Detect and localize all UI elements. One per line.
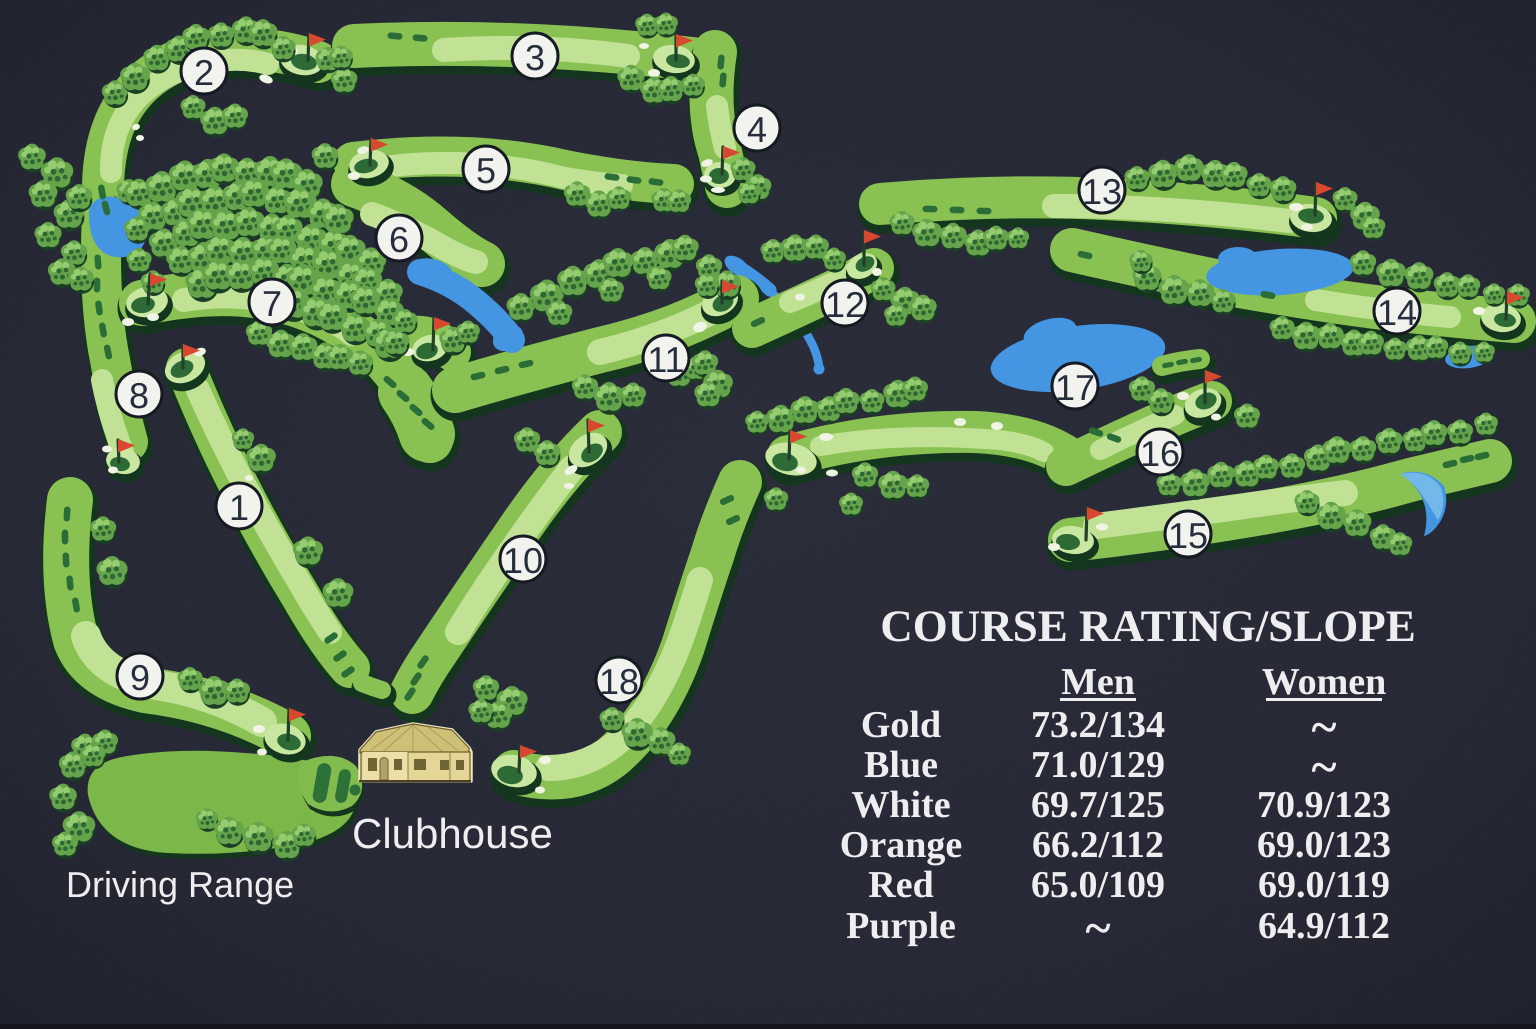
svg-text:10: 10 bbox=[503, 540, 543, 581]
svg-text:2: 2 bbox=[194, 52, 214, 93]
svg-text:Red: Red bbox=[868, 864, 933, 906]
svg-text:Blue: Blue bbox=[864, 744, 938, 786]
svg-text:9: 9 bbox=[130, 657, 150, 698]
svg-text:13: 13 bbox=[1082, 171, 1122, 212]
svg-text:4: 4 bbox=[747, 109, 767, 150]
svg-text:Gold: Gold bbox=[861, 704, 941, 746]
svg-text:66.2/112: 66.2/112 bbox=[1032, 824, 1164, 866]
svg-text:16: 16 bbox=[1140, 433, 1180, 474]
svg-text:Clubhouse: Clubhouse bbox=[352, 810, 553, 857]
svg-text:5: 5 bbox=[476, 150, 496, 191]
svg-text:73.2/134: 73.2/134 bbox=[1031, 704, 1165, 746]
svg-text:64.9/112: 64.9/112 bbox=[1258, 905, 1390, 947]
svg-text:12: 12 bbox=[825, 284, 865, 325]
svg-text:6: 6 bbox=[389, 219, 409, 260]
svg-text:Women: Women bbox=[1262, 661, 1387, 703]
svg-text:3: 3 bbox=[525, 37, 545, 78]
svg-text:Purple: Purple bbox=[846, 905, 956, 947]
svg-text:18: 18 bbox=[599, 661, 639, 702]
svg-text:69.0/123: 69.0/123 bbox=[1257, 824, 1391, 866]
svg-text:Men: Men bbox=[1061, 661, 1135, 703]
svg-text:71.0/129: 71.0/129 bbox=[1031, 744, 1165, 786]
svg-text:11: 11 bbox=[647, 339, 684, 380]
svg-text:14: 14 bbox=[1377, 292, 1417, 333]
svg-text:7: 7 bbox=[262, 283, 282, 324]
svg-text:~: ~ bbox=[1086, 902, 1111, 955]
svg-text:70.9/123: 70.9/123 bbox=[1257, 784, 1391, 826]
svg-text:69.7/125: 69.7/125 bbox=[1031, 784, 1165, 826]
svg-text:8: 8 bbox=[129, 375, 149, 416]
svg-text:65.0/109: 65.0/109 bbox=[1031, 864, 1165, 906]
svg-text:15: 15 bbox=[1168, 515, 1208, 556]
svg-text:1: 1 bbox=[229, 487, 249, 528]
svg-text:17: 17 bbox=[1055, 367, 1095, 408]
svg-text:White: White bbox=[851, 784, 950, 826]
svg-text:COURSE RATING/SLOPE: COURSE RATING/SLOPE bbox=[880, 601, 1416, 651]
svg-text:69.0/119: 69.0/119 bbox=[1258, 864, 1390, 906]
svg-text:Orange: Orange bbox=[840, 824, 962, 866]
svg-text:Driving Range: Driving Range bbox=[66, 864, 294, 905]
